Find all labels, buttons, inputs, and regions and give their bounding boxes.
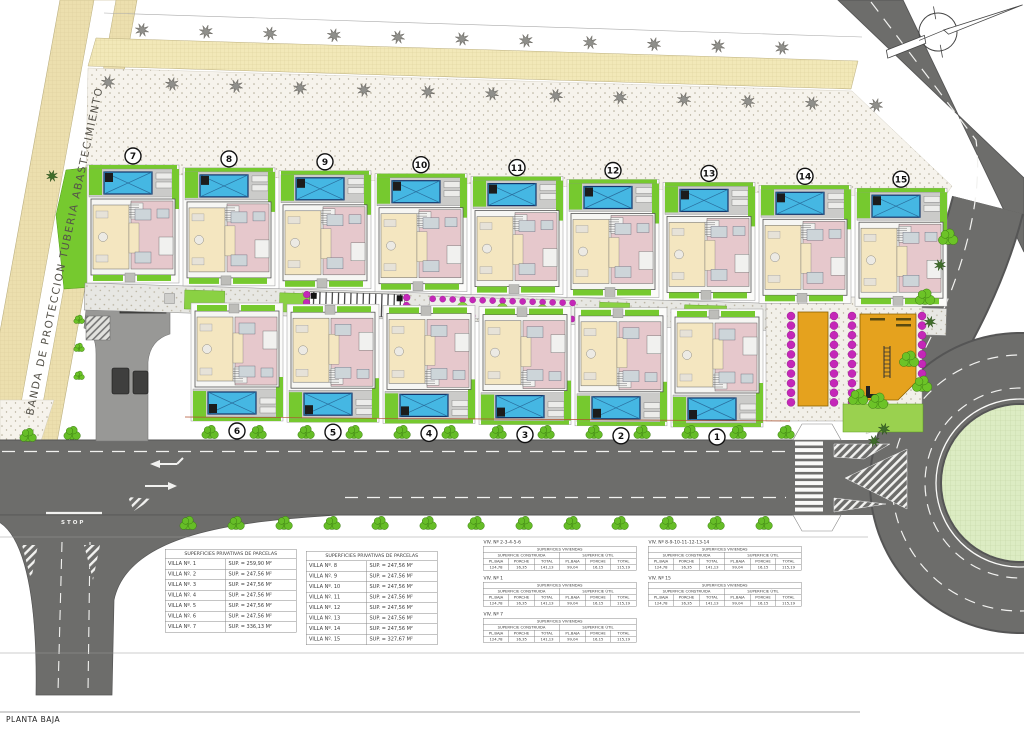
villa-name-cell: VILLA Nº. 3: [165, 580, 226, 591]
parcel-row: VILLA Nº. 7SUP. = 336,13 M²: [165, 622, 296, 633]
viviendas-value-cell: 115,19: [776, 564, 802, 570]
parcel-row: VILLA Nº. 11SUP. = 247,56 M²: [306, 592, 437, 603]
villa-name-cell: VILLA Nº. 10: [306, 582, 367, 593]
viviendas-group-label: VIV. Nº 1: [484, 576, 637, 581]
villa-name-cell: VILLA Nº. 1: [165, 559, 226, 570]
parcel-row: VILLA Nº. 8SUP. = 247,56 M²: [306, 561, 437, 572]
viviendas-value-cell: 16,35: [509, 564, 535, 570]
viviendas-table: SUPERFICIES VIVIENDASSUPERFICIE CONSTRUI…: [483, 546, 637, 571]
viviendas-value-cell: 16,15: [585, 600, 611, 606]
parcel-table: SUPERFICIES PRIVATIVAS DE PARCELASVILLA …: [306, 551, 438, 645]
viviendas-table-block: VIV. Nº 15SUPERFICIES VIVIENDASSUPERFICI…: [648, 576, 802, 607]
villa-name-cell: VILLA Nº. 14: [306, 624, 367, 635]
parcel-row: VILLA Nº. 6SUP. = 247,56 M²: [165, 611, 296, 622]
viviendas-value-cell: 115,19: [611, 636, 637, 642]
villa-sup-cell: SUP. = 247,56 M²: [367, 592, 438, 603]
parcel-row: VILLA Nº. 10SUP. = 247,56 M²: [306, 582, 437, 593]
viviendas-table-block: VIV. Nº 7SUPERFICIES VIVIENDASSUPERFICIE…: [483, 612, 637, 643]
parcel-table-title: SUPERFICIES PRIVATIVAS DE PARCELAS: [165, 549, 296, 558]
viviendas-table: SUPERFICIES VIVIENDASSUPERFICIE CONSTRUI…: [483, 618, 637, 643]
viviendas-value-cell: 16,35: [509, 600, 535, 606]
viviendas-value-cell: 16,35: [674, 600, 700, 606]
viviendas-value-cell: 16,15: [585, 564, 611, 570]
villa-sup-cell: SUP. = 259,90 M²: [226, 559, 297, 570]
viviendas-values-row: 124,7816,35141,1399,0416,15115,19: [483, 636, 636, 642]
viviendas-value-cell: 99,04: [725, 564, 751, 570]
viviendas-table: SUPERFICIES VIVIENDASSUPERFICIE CONSTRUI…: [483, 582, 637, 607]
viviendas-values-row: 124,7816,35141,1399,0416,15115,19: [483, 564, 636, 570]
villa-sup-cell: SUP. = 247,56 M²: [367, 613, 438, 624]
parcel-row: VILLA Nº. 13SUP. = 247,56 M²: [306, 613, 437, 624]
parcel-table: SUPERFICIES PRIVATIVAS DE PARCELASVILLA …: [165, 549, 297, 632]
villa-sup-cell: SUP. = 327,67 M²: [367, 634, 438, 645]
villa-sup-cell: SUP. = 247,56 M²: [367, 582, 438, 593]
viviendas-value-cell: 141,13: [699, 564, 725, 570]
viviendas-value-cell: 124,78: [648, 600, 674, 606]
viviendas-value-cell: 115,19: [611, 600, 637, 606]
villa-name-cell: VILLA Nº. 13: [306, 613, 367, 624]
parcel-row: VILLA Nº. 2SUP. = 247,56 M²: [165, 569, 296, 580]
viviendas-value-cell: 99,04: [560, 600, 586, 606]
parcel-row: VILLA Nº. 15SUP. = 327,67 M²: [306, 634, 437, 645]
viviendas-value-cell: 124,78: [648, 564, 674, 570]
viviendas-table-block: VIV. Nº 2-3-4-5-6SUPERFICIES VIVIENDASSU…: [483, 540, 637, 571]
villa-sup-cell: SUP. = 247,56 M²: [367, 571, 438, 582]
villa-name-cell: VILLA Nº. 6: [165, 611, 226, 622]
villa-name-cell: VILLA Nº. 5: [165, 601, 226, 612]
parcel-row: VILLA Nº. 4SUP. = 247,56 M²: [165, 590, 296, 601]
villa-sup-cell: SUP. = 247,56 M²: [226, 601, 297, 612]
villa-name-cell: VILLA Nº. 4: [165, 590, 226, 601]
site-plan-page: 789101112131415654321 BANDA DE PROTECCIO…: [0, 0, 1024, 732]
villa-name-cell: VILLA Nº. 15: [306, 634, 367, 645]
parcel-table-header: SUPERFICIES PRIVATIVAS DE PARCELAS: [165, 549, 296, 558]
parcel-row: VILLA Nº. 5SUP. = 247,56 M²: [165, 601, 296, 612]
villa-sup-cell: SUP. = 247,56 M²: [226, 580, 297, 591]
viviendas-group-label: VIV. Nº 7: [484, 612, 637, 617]
viviendas-value-cell: 16,15: [585, 636, 611, 642]
viviendas-value-cell: 124,78: [483, 600, 509, 606]
viviendas-group-label: VIV. Nº 15: [649, 576, 802, 581]
villa-sup-cell: SUP. = 247,56 M²: [226, 569, 297, 580]
viviendas-value-cell: 141,13: [699, 600, 725, 606]
viviendas-values-row: 124,7816,35141,1399,0416,15115,19: [648, 564, 801, 570]
villa-sup-cell: SUP. = 336,13 M²: [226, 622, 297, 633]
villa-name-cell: VILLA Nº. 2: [165, 569, 226, 580]
viviendas-group-label: VIV. Nº 2-3-4-5-6: [484, 540, 637, 545]
viviendas-value-cell: 141,13: [534, 600, 560, 606]
villa-name-cell: VILLA Nº. 8: [306, 561, 367, 572]
parcel-row: VILLA Nº. 9SUP. = 247,56 M²: [306, 571, 437, 582]
viviendas-group-label: VIV. Nº 8-9-10-11-12-13-14: [649, 540, 802, 545]
villa-name-cell: VILLA Nº. 11: [306, 592, 367, 603]
viviendas-value-cell: 16,15: [750, 600, 776, 606]
villa-sup-cell: SUP. = 247,56 M²: [367, 624, 438, 635]
parcel-row: VILLA Nº. 14SUP. = 247,56 M²: [306, 624, 437, 635]
tables-layer: SUPERFICIES PRIVATIVAS DE PARCELASVILLA …: [0, 0, 1024, 732]
villa-name-cell: VILLA Nº. 12: [306, 603, 367, 614]
viviendas-table-block: VIV. Nº 8-9-10-11-12-13-14SUPERFICIES VI…: [648, 540, 802, 571]
viviendas-value-cell: 16,35: [509, 636, 535, 642]
viviendas-value-cell: 99,04: [560, 564, 586, 570]
villa-sup-cell: SUP. = 247,56 M²: [367, 561, 438, 572]
viviendas-value-cell: 115,19: [611, 564, 637, 570]
parcel-row: VILLA Nº. 3SUP. = 247,56 M²: [165, 580, 296, 591]
viviendas-table: SUPERFICIES VIVIENDASSUPERFICIE CONSTRUI…: [648, 582, 802, 607]
villa-sup-cell: SUP. = 247,56 M²: [226, 590, 297, 601]
viviendas-value-cell: 16,15: [750, 564, 776, 570]
viviendas-value-cell: 124,78: [483, 636, 509, 642]
viviendas-value-cell: 99,04: [560, 636, 586, 642]
parcel-row: VILLA Nº. 1SUP. = 259,90 M²: [165, 559, 296, 570]
parcel-table-header: SUPERFICIES PRIVATIVAS DE PARCELAS: [306, 551, 437, 560]
viviendas-value-cell: 141,13: [534, 636, 560, 642]
parcel-row: VILLA Nº. 12SUP. = 247,56 M²: [306, 603, 437, 614]
villa-name-cell: VILLA Nº. 7: [165, 622, 226, 633]
viviendas-value-cell: 99,04: [725, 600, 751, 606]
viviendas-value-cell: 124,78: [483, 564, 509, 570]
villa-sup-cell: SUP. = 247,56 M²: [226, 611, 297, 622]
viviendas-value-cell: 141,13: [534, 564, 560, 570]
viviendas-table-block: VIV. Nº 1SUPERFICIES VIVIENDASSUPERFICIE…: [483, 576, 637, 607]
viviendas-table: SUPERFICIES VIVIENDASSUPERFICIE CONSTRUI…: [648, 546, 802, 571]
parcel-table-title: SUPERFICIES PRIVATIVAS DE PARCELAS: [306, 551, 437, 560]
viviendas-values-row: 124,7816,35141,1399,0416,15115,19: [648, 600, 801, 606]
villa-sup-cell: SUP. = 247,56 M²: [367, 603, 438, 614]
villa-name-cell: VILLA Nº. 9: [306, 571, 367, 582]
viviendas-value-cell: 16,35: [674, 564, 700, 570]
viviendas-value-cell: 115,19: [776, 600, 802, 606]
viviendas-values-row: 124,7816,35141,1399,0416,15115,19: [483, 600, 636, 606]
